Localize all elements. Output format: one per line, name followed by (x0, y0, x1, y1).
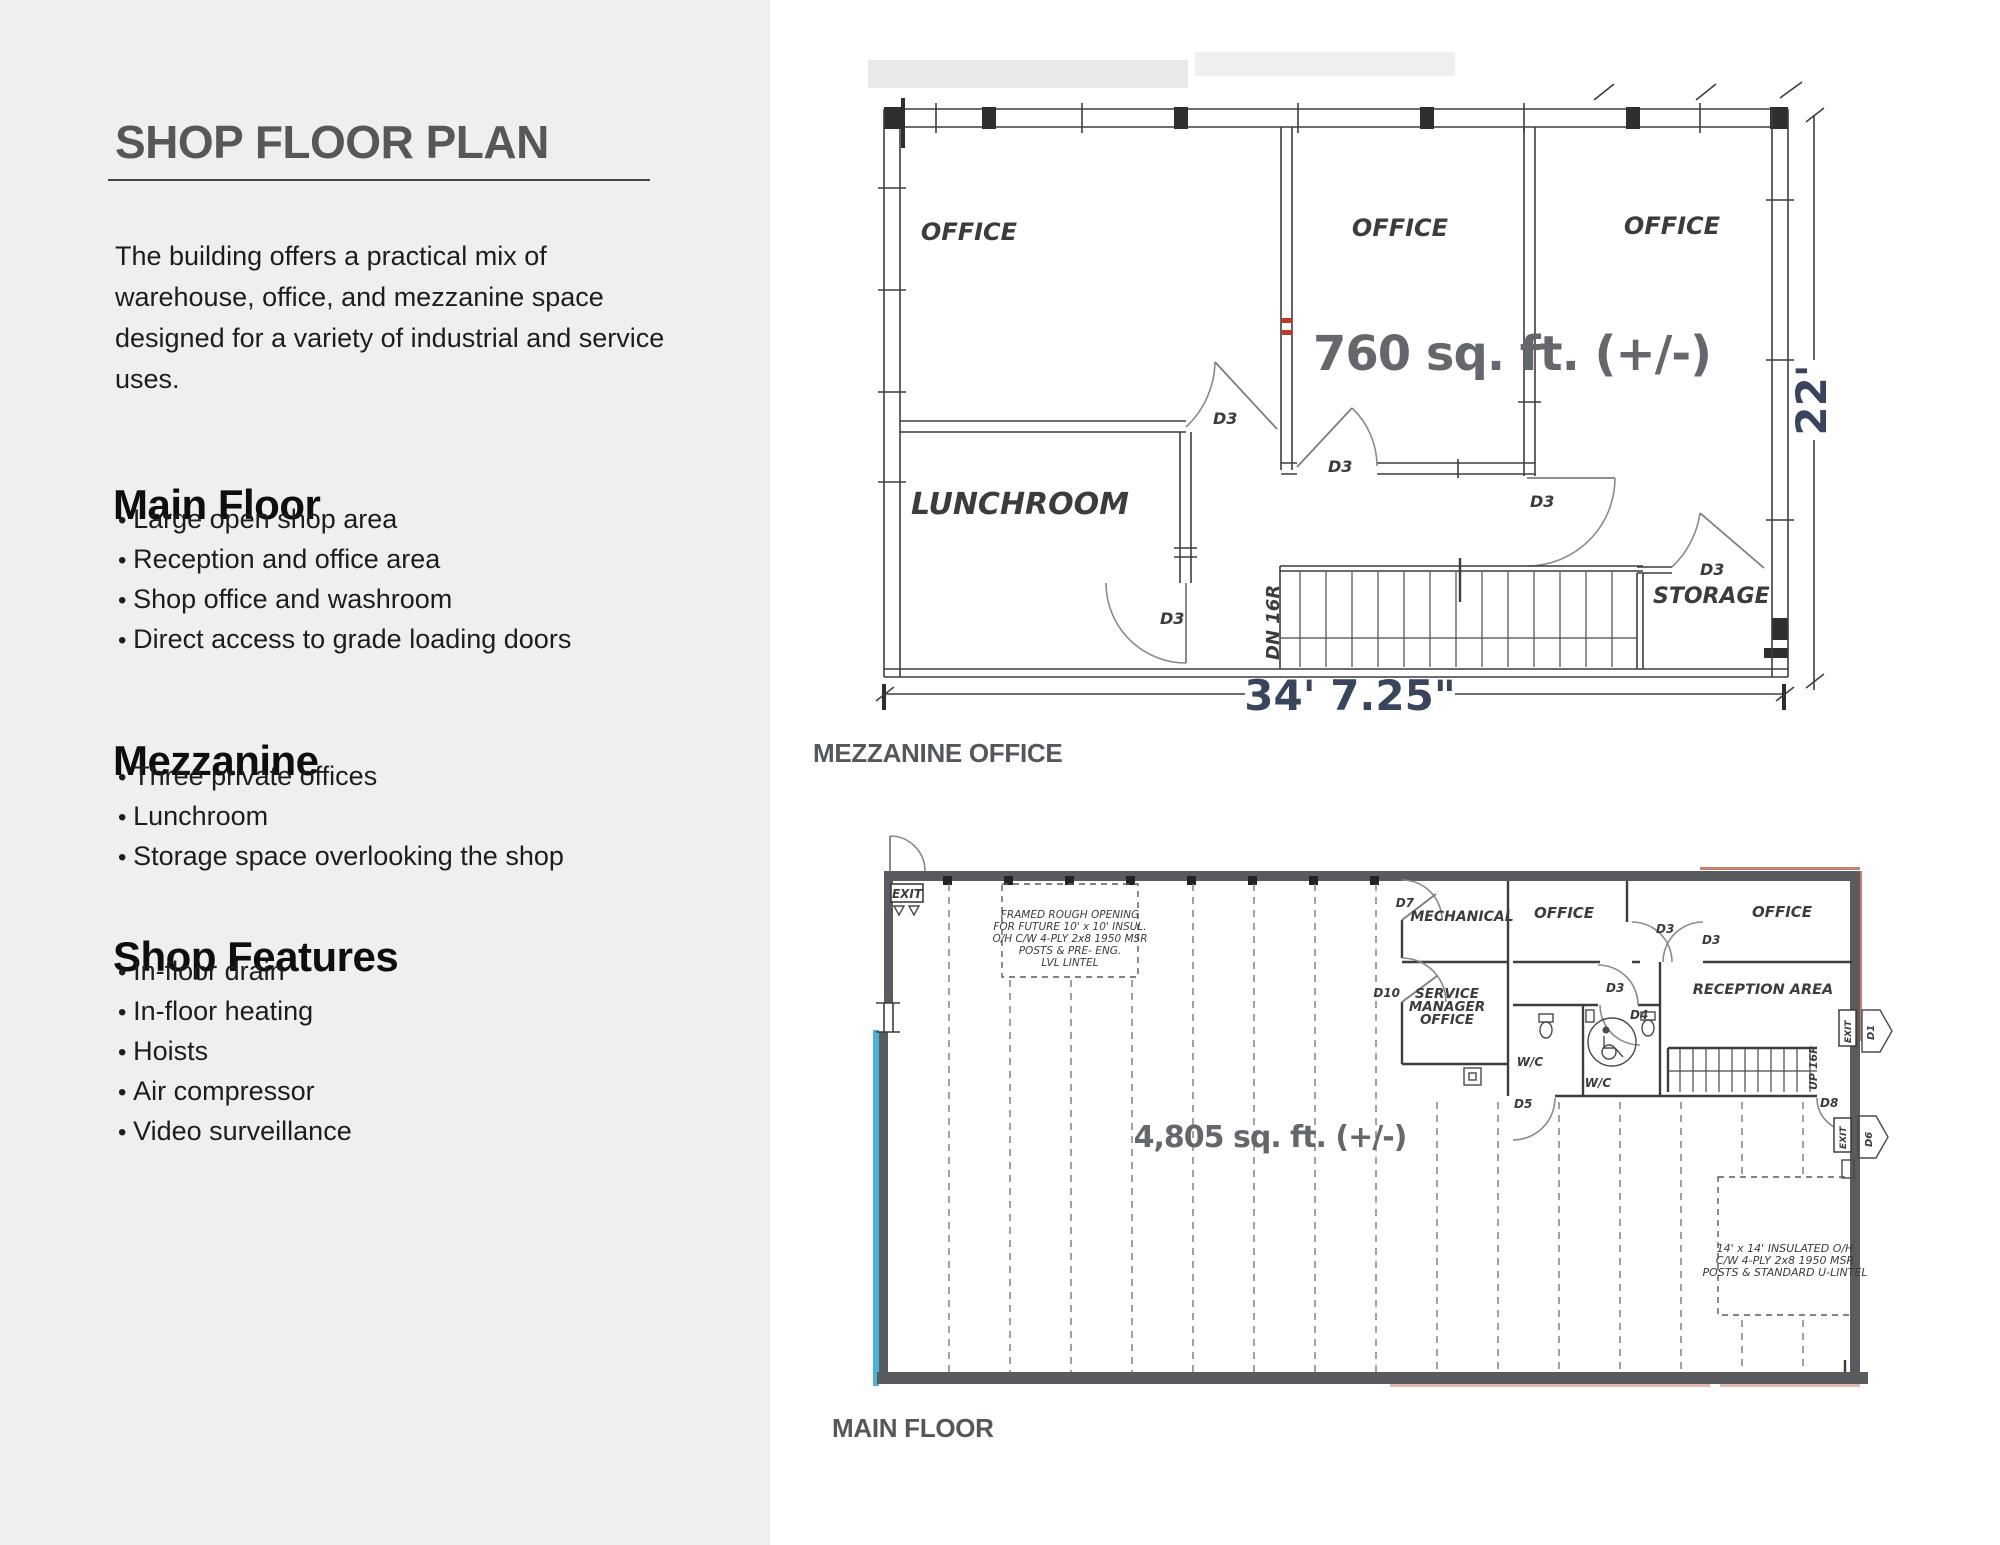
room-label-office-1: OFFICE (921, 218, 1018, 246)
door-label: D1 (1866, 1025, 1877, 1040)
exit-door-d6: EXIT D6 (1834, 1116, 1888, 1178)
room-label-office-1: OFFICE (1534, 904, 1595, 922)
list-item: Air compressor (118, 1072, 352, 1112)
title-underline (108, 179, 650, 181)
main-floor-feature-list: Large open shop area Reception and offic… (118, 500, 571, 660)
list-item: Shop office and washroom (118, 580, 571, 620)
top-wall (884, 109, 1788, 127)
door-arc (890, 836, 925, 871)
door-label: D3 (1700, 560, 1724, 579)
sidebar: SHOP FLOOR PLAN The building offers a pr… (0, 0, 770, 1545)
toilet-icon (1540, 1022, 1552, 1038)
intro-line: The building offers a practical mix of (115, 236, 664, 277)
main-floor-stairs: UP 16R (1668, 1045, 1820, 1092)
list-item: Lunchroom (118, 797, 564, 837)
note-line: LVL LINTEL (1041, 957, 1098, 969)
door-label: D3 (1160, 609, 1184, 628)
door-arc (1186, 362, 1215, 427)
exit-sign-top-left: EXIT (891, 884, 923, 915)
door-label: D6 (1864, 1132, 1875, 1147)
cyan-scan-line (873, 1030, 879, 1386)
scan-smudge (868, 60, 1188, 88)
exit-label: EXIT (1839, 1126, 1849, 1149)
mezzanine-doors (1106, 362, 1764, 663)
list-item: Hoists (118, 1032, 352, 1072)
mezzanine-area-label: 760 sq. ft. (+/-) (1313, 326, 1711, 382)
exit-label: EXIT (892, 887, 923, 901)
mezzanine-caption: MEZZANINE OFFICE (813, 738, 1062, 769)
wall-posts (884, 107, 1788, 658)
office2-bottom-wall (1281, 463, 1535, 474)
exit-triangles (894, 906, 919, 915)
stair-treads (1300, 572, 1612, 667)
office-divider-2 (1524, 127, 1535, 476)
stair-edge (1668, 1048, 1817, 1092)
lunchroom-top-wall (900, 421, 1186, 432)
room-label-wc-1: W/C (1517, 1055, 1544, 1069)
stair-edge (1280, 566, 1643, 669)
sink-icon (1586, 1010, 1594, 1022)
door-arc (1352, 408, 1377, 466)
note-line: FOR FUTURE 10' x 10' INSUL. (993, 921, 1146, 933)
note-line: POSTS & PRE- ENG. (1019, 945, 1122, 957)
note-line: O/H C/W 4-PLY 2x8 1950 MSR (992, 933, 1147, 945)
toilet-icon (1642, 1020, 1654, 1036)
door-label: D3 (1328, 457, 1352, 476)
mezzanine-stairs: DN 16R (1263, 558, 1643, 669)
room-label-office-2: OFFICE (1352, 214, 1449, 242)
storage-walls (1637, 567, 1672, 669)
height-dimension: 22' (1787, 108, 1836, 690)
room-label-service-3: OFFICE (1420, 1012, 1475, 1028)
rough-opening-note: FRAMED ROUGH OPENING FOR FUTURE 10' x 10… (992, 884, 1147, 977)
list-item: Reception and office area (118, 540, 571, 580)
mezzanine-feature-list: Three private offices Lunchroom Storage … (118, 757, 564, 877)
note-line: POSTS & STANDARD U-LINTEL (1702, 1266, 1867, 1279)
red-scan-line (1700, 867, 1860, 870)
list-item: Storage space overlooking the shop (118, 837, 564, 877)
list-item: Video surveillance (118, 1112, 352, 1152)
shop-feature-list: In-floor drain In-floor heating Hoists A… (118, 952, 352, 1152)
stairs-down-label: DN 16R (1263, 585, 1284, 660)
wheelchair-icon (1588, 1018, 1636, 1066)
toilet-tank (1539, 1014, 1553, 1022)
floor-drain-icon (1464, 1068, 1481, 1085)
room-label-mechanical: MECHANICAL (1410, 909, 1513, 925)
door-arc (1672, 513, 1700, 567)
mezzanine-floor-plan: DN 16R OFFICE OFFICE OFFICE LUNCHROOM ST… (790, 30, 1900, 730)
washroom-fixtures (1464, 1010, 1655, 1085)
left-wall (884, 109, 900, 677)
exit-door-d1: EXIT D1 (1839, 1010, 1892, 1052)
room-label-office-3: OFFICE (1624, 212, 1721, 240)
right-window-ticks (1766, 200, 1794, 520)
intro-line: warehouse, office, and mezzanine space (115, 277, 664, 318)
room-label-storage: STORAGE (1653, 584, 1770, 609)
main-floor-area-label: 4,805 sq. ft. (+/-) (1134, 1120, 1407, 1155)
note-line: FRAMED ROUGH OPENING (1001, 909, 1139, 921)
door-label: D5 (1514, 1097, 1532, 1111)
break-slashes (1594, 82, 1802, 100)
red-scan-mark (1282, 330, 1292, 335)
left-wall-lower (879, 1032, 888, 1372)
width-dimension-text: 34' 7.25" (1244, 671, 1455, 720)
door-label: D4 (1630, 1008, 1648, 1022)
list-item: Three private offices (118, 757, 564, 797)
list-item: Large open shop area (118, 500, 571, 540)
mezzanine-interior-walls (900, 127, 1672, 669)
page-title: SHOP FLOOR PLAN (115, 115, 549, 169)
exit-label: EXIT (1844, 1020, 1854, 1043)
stairs-up-label: UP 16R (1807, 1045, 1820, 1090)
list-item: In-floor drain (118, 952, 352, 992)
list-item: In-floor heating (118, 992, 352, 1032)
page: { "sidebar": { "title": "SHOP FLOOR PLAN… (0, 0, 2000, 1545)
window-mullions (936, 103, 1700, 133)
office-divider-1 (1281, 127, 1292, 470)
room-label-wc-2: W/C (1585, 1076, 1612, 1090)
door-label: D3 (1213, 409, 1237, 428)
door-label: D3 (1606, 981, 1624, 995)
room-label-lunchroom: LUNCHROOM (911, 487, 1129, 522)
main-floor-caption: MAIN FLOOR (832, 1413, 994, 1444)
scan-smudge (1195, 52, 1455, 76)
room-label-reception: RECEPTION AREA (1693, 982, 1834, 998)
door-label: D3 (1656, 922, 1674, 936)
overhead-door-note: 14' x 14' INSULATED O/H C/W 4-PLY 2x8 19… (1702, 1177, 1867, 1315)
main-floor-plan: EXIT FRAMED ROUGH OPENING FOR FUTURE 10'… (790, 820, 1910, 1420)
intro-line: uses. (115, 359, 664, 400)
right-wall (1772, 109, 1788, 677)
door-label: D3 (1702, 933, 1720, 947)
intro-line: designed for a variety of industrial and… (115, 318, 664, 359)
intro-paragraph: The building offers a practical mix of w… (115, 236, 664, 400)
mezzanine-plan-figure: DN 16R OFFICE OFFICE OFFICE LUNCHROOM ST… (790, 30, 1900, 730)
floor-drain-icon (1469, 1073, 1476, 1080)
door-label: D8 (1820, 1096, 1838, 1110)
left-window-ticks (878, 188, 906, 482)
door-label: D3 (1530, 492, 1554, 511)
red-scan-mark (1282, 318, 1292, 323)
main-floor-figure: EXIT FRAMED ROUGH OPENING FOR FUTURE 10'… (790, 820, 1910, 1420)
bottom-wall (877, 1372, 1868, 1384)
room-label-office-2: OFFICE (1752, 903, 1813, 921)
left-wall-window (876, 1003, 900, 1032)
lunchroom-right-wall (1180, 432, 1191, 583)
wall-break (1174, 548, 1197, 557)
door-label: D10 (1373, 986, 1400, 1000)
height-dimension-text: 22' (1787, 364, 1836, 435)
width-dimension: 34' 7.25" (876, 671, 1794, 720)
door-label: D7 (1396, 896, 1415, 910)
list-item: Direct access to grade loading doors (118, 620, 571, 660)
